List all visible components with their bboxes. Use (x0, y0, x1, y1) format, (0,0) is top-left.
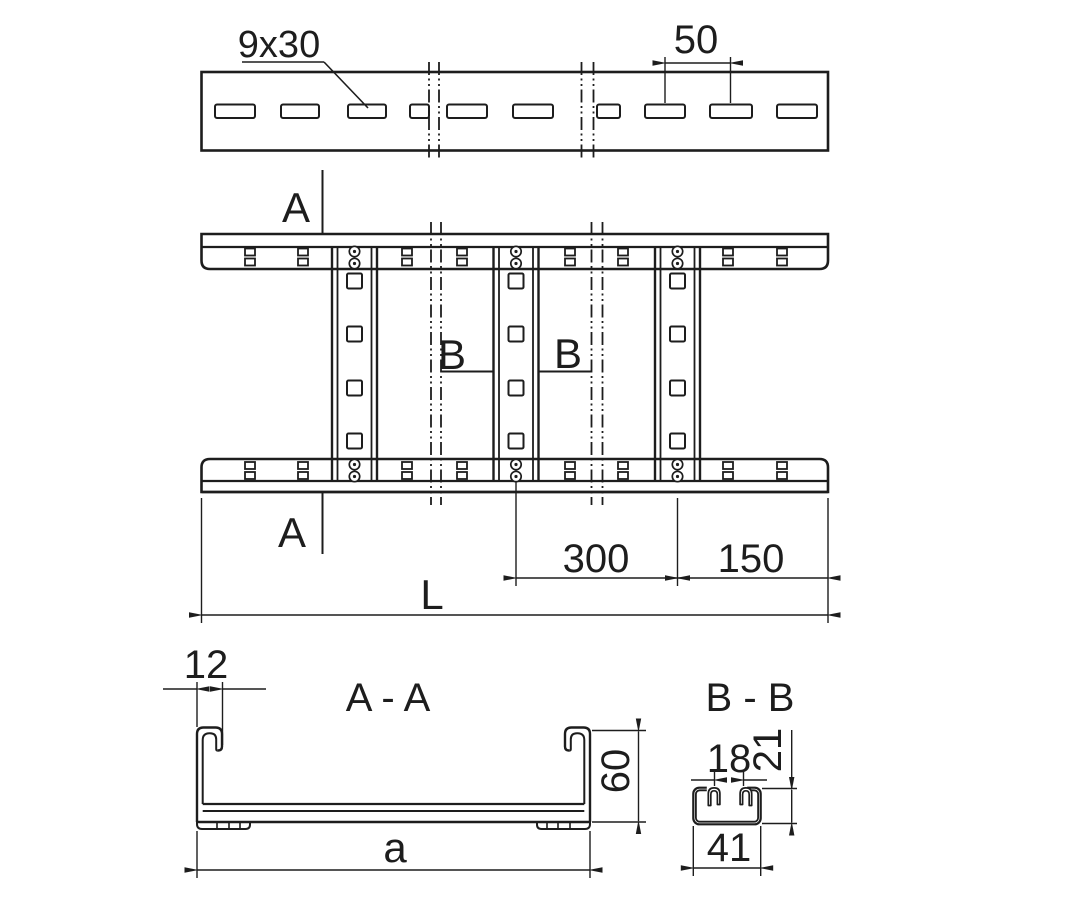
bb-left-lip (708, 788, 720, 806)
section-bb-view: B - B 18 21 41 (691, 676, 797, 876)
rung-square-hole (670, 434, 685, 449)
rung-square-hole (347, 327, 362, 342)
rung-hole-center (676, 250, 679, 253)
rail-hole (777, 249, 787, 256)
rung-hole-center (514, 262, 517, 265)
technical-drawing-page: 9x30 50 A A B B 300 1 (0, 0, 1066, 904)
rung-hole-center (676, 475, 679, 478)
section-b-left-label: B (438, 331, 466, 378)
rail-hole (402, 462, 412, 469)
rung-spacing-dim: 300 (563, 537, 630, 581)
rung-hole-center (353, 475, 356, 478)
section-aa-title: A - A (346, 676, 431, 720)
slot-hole (597, 105, 620, 119)
width-dim: a (383, 824, 407, 871)
slot-hole (777, 105, 817, 119)
rail-hole (618, 249, 628, 256)
rung-square-hole (347, 434, 362, 449)
slot-hole (645, 105, 685, 119)
rail-hole (298, 462, 308, 469)
rail-hole (402, 259, 412, 266)
rail-hole (723, 249, 733, 256)
aa-left-wall-inner (203, 733, 218, 804)
slot-hole (710, 105, 752, 119)
aa-right-wall-inner (570, 733, 585, 804)
rail-hole (618, 259, 628, 266)
rail-hole (618, 472, 628, 479)
rung-square-hole (509, 434, 524, 449)
rail-hole (565, 472, 575, 479)
rail-hole (777, 472, 787, 479)
plan-view: A A B B 300 150 L (202, 170, 829, 623)
lip-width-dim: 12 (184, 643, 229, 687)
rung-hole-center (514, 475, 517, 478)
slot-hole (215, 105, 255, 119)
bb-right-lip (740, 788, 752, 806)
slot-pitch-dim: 50 (674, 18, 719, 62)
rung-width-dim: 41 (707, 826, 752, 870)
section-bb-title: B - B (706, 676, 795, 720)
strip-breaks (429, 62, 594, 160)
aa-left-foot (197, 818, 250, 829)
rung-hole-center (676, 262, 679, 265)
rail-hole (245, 249, 255, 256)
rail-hole (245, 462, 255, 469)
aa-left-wall-outer (197, 728, 222, 823)
side-elevation-view: 9x30 50 (202, 18, 829, 160)
slot-hole (410, 105, 429, 119)
aa-right-foot (537, 818, 590, 829)
section-b-right-label: B (554, 330, 582, 377)
rail-hole (777, 259, 787, 266)
rail-hole (777, 462, 787, 469)
rail-hole (298, 259, 308, 266)
rail-hole (723, 462, 733, 469)
rail-hole (457, 472, 467, 479)
rail-hole (245, 472, 255, 479)
rung-square-hole (509, 381, 524, 396)
slot-hole (447, 105, 487, 119)
cable-ladder-drawing: 9x30 50 A A B B 300 1 (0, 0, 1066, 904)
rail-outline (202, 72, 829, 151)
slot-hole (281, 105, 319, 119)
rail-hole (565, 249, 575, 256)
rung-hole-center (353, 262, 356, 265)
end-spacing-dim: 150 (718, 537, 785, 581)
rail-hole (298, 472, 308, 479)
rung-square-hole (509, 327, 524, 342)
section-a-top-label: A (282, 184, 310, 231)
rail-hole (723, 259, 733, 266)
rung-hole-center (514, 463, 517, 466)
plan-rungs (332, 246, 700, 481)
section-a-bottom-label: A (278, 509, 306, 556)
length-dim: L (420, 571, 443, 618)
rung-hole-center (353, 250, 356, 253)
rung-hole-center (353, 463, 356, 466)
rail-hole (457, 259, 467, 266)
slot-hole (513, 105, 553, 119)
rail-hole (565, 259, 575, 266)
rail-hole (457, 462, 467, 469)
rung-square-hole (670, 381, 685, 396)
strip-slots (215, 105, 817, 119)
slot-leader-line (324, 62, 368, 108)
rung-square-hole (670, 274, 685, 289)
rung-square-hole (347, 274, 362, 289)
rail-hole (402, 472, 412, 479)
rung-hole-center (676, 463, 679, 466)
rail-hole (618, 462, 628, 469)
rail-hole (298, 249, 308, 256)
rung-height-dim: 21 (746, 728, 790, 773)
rung-hole-center (514, 250, 517, 253)
aa-right-wall-outer (565, 728, 590, 823)
rail-hole (723, 472, 733, 479)
section-aa-view: A - A 12 60 a (163, 643, 646, 878)
rail-hole (402, 249, 412, 256)
rail-hole (457, 249, 467, 256)
rung-square-hole (347, 381, 362, 396)
rung-square-hole (670, 327, 685, 342)
slot-size-label: 9x30 (238, 24, 320, 66)
rung-square-hole (509, 274, 524, 289)
rail-hole (565, 462, 575, 469)
rail-hole (245, 259, 255, 266)
side-height-dim: 60 (594, 749, 638, 794)
rung-opening-dim: 18 (707, 737, 752, 781)
